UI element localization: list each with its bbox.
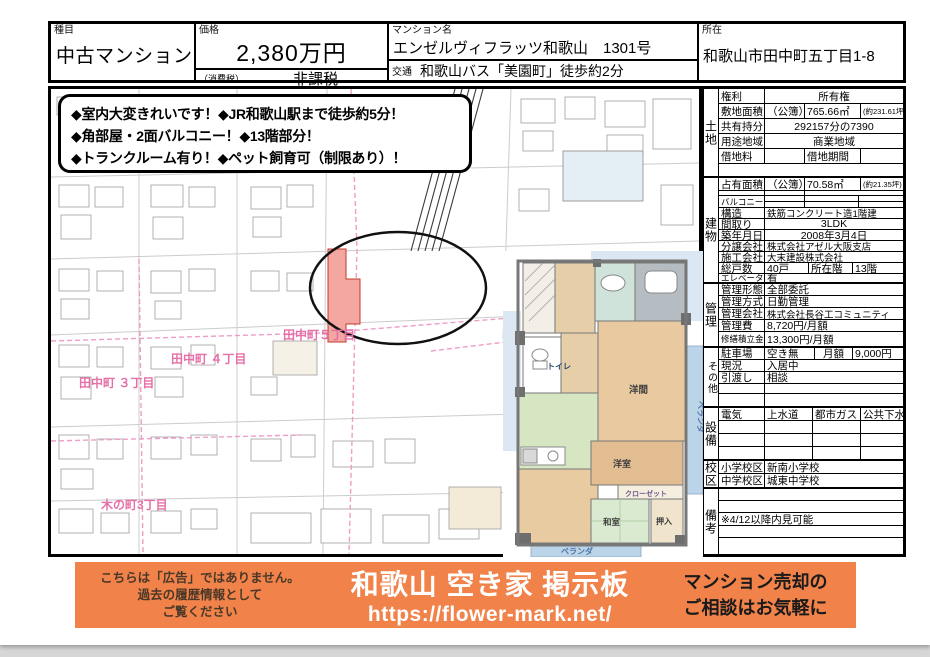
parking-label: 駐車場 [719,348,765,359]
structure-label: 構造 [719,208,765,218]
access-label: 交通 [389,63,420,78]
footer-banner: こちらは「広告」ではありません。 過去の履歴情報として ご覧ください 和歌山 空… [75,562,856,628]
flyer-page: 種目 中古マンション 価格 2,380万円 （消費税） 非課税 マンション名 エ… [0,0,930,645]
row-other-blank1 [719,384,903,394]
handover-label: 引渡し [719,372,765,383]
structure-value: 鉄筋コンクリート造1階建 [765,208,903,218]
stove-icon [523,449,537,463]
constructor-label: 施工会社 [719,252,765,262]
elementary-label: 小学校区 [719,461,765,473]
address-value: 和歌山市田中町五丁目1-8 [699,37,903,66]
mgmt-fee-value: 8,720円/月額 [765,320,903,331]
toilet-icon [532,349,548,361]
section-building-title: 建物 [704,178,719,282]
address-label: 所在 [699,24,903,37]
rights-label: 権利 [719,89,765,103]
section-school-title: 校区 [704,461,719,487]
highlights-callout: ◆室内大変きれいです！◆JR和歌山駅まで徒歩約5分！ ◆角部屋・2面バルコニー！… [58,94,472,173]
zone-value: 商業地域 [765,134,903,148]
banner-brand: 和歌山 空き家 掲示板 https://flower-mark.net/ [325,563,655,627]
cta-line-2: ご相談はお気軽に [655,595,856,621]
note-text: ※4/12以降内見可能 [719,513,903,525]
facility-sewer: 公共下水 [861,408,903,420]
section-management-title: 管理 [704,284,719,346]
land-rent-label: 借地料 [719,149,765,163]
bathtub-icon [645,271,677,293]
washbasin-icon [601,275,625,291]
row-layout: 間取り 3LDK [719,219,903,230]
section-other: その他 駐車場 空き無 月額 9,000円 現況 入居中 引渡し 相談 [704,348,903,408]
section-facilities-title: 設備 [704,408,719,459]
section-other-title: その他 [704,348,719,406]
land-area-label: 敷地面積 [719,104,765,118]
row-land-area: 敷地面積 （公簿） 765.66㎡ (約231.61坪) [719,104,903,119]
row-reserve-fund: 修繕積立金 13,300円/月額 [719,332,903,346]
highlight-line-3: ◆トランクルーム有り！◆ペット飼育可（制限あり）！ [71,147,459,169]
section-land: 土地 権利 所有権 敷地面積 （公簿） 765.66㎡ (約231.61坪) 共… [704,89,903,178]
section-facilities: 設備 電気 上水道 都市ガス 公共下水 [704,408,903,461]
access-value: 和歌山バス「美園町」徒歩約2分 [420,61,624,81]
row-developer: 分譲会社 株式会社アゼル大阪支店 [719,241,903,252]
mgmt-company-value: 株式会社長谷工コミュニティ [765,308,903,319]
developer-label: 分譲会社 [719,241,765,251]
row-mgmt-company: 管理会社 株式会社長谷工コミュニティ [719,308,903,320]
price-value: 2,380万円 [196,34,387,68]
address-cell: 所在 和歌山市田中町五丁目1-8 [699,24,903,80]
row-other-blank2 [719,394,903,406]
map-label-tanaka5: 田中町５丁目 [283,327,355,342]
label-washitsu: 和室 [603,517,621,527]
row-mgmt-fee: 管理費 8,720円/月額 [719,320,903,332]
disclaimer-line-1: こちらは「広告」ではありません。 [75,570,325,587]
highlight-line-1: ◆室内大変きれいです！◆JR和歌山駅まで徒歩約5分！ [71,103,459,125]
building-name-label: マンション名 [389,24,697,37]
developer-value: 株式会社アゼル大阪支店 [765,241,903,251]
handover-value: 相談 [765,372,903,383]
mgmt-form-value: 全部委託 [765,284,903,295]
highlight-line-2: ◆角部屋・2面バルコニー！◆13階部分！ [71,125,459,147]
disclaimer-line-3: ご覧ください [75,604,325,621]
section-school: 校区 小学校区 新南小学校 中学校区 城東中学校 [704,461,903,489]
site-title: 和歌山 空き家 掲示板 [325,563,655,603]
disclaimer-line-2: 過去の履歴情報として [75,587,325,604]
header-table: 種目 中古マンション 価格 2,380万円 （消費税） 非課税 マンション名 エ… [48,21,906,83]
section-land-title: 土地 [704,89,719,176]
label-toilet: トイレ [547,362,571,371]
status-label: 現況 [719,360,765,371]
row-facilities-blank2 [719,434,903,447]
row-structure: 構造 鉄筋コンクリート造1階建 [719,208,903,219]
floorplan-rooms [518,263,686,543]
parking-fee-value: 9,000円 [853,348,903,359]
map-label-kinomachi3: 木の町3丁目 [100,497,168,512]
row-constructor: 施工会社 大末建設株式会社 [719,252,903,263]
parking-fee-label: 月額 [815,348,853,359]
junior-high-value: 城東中学校 [765,474,903,487]
floorplan: トイレ 洋間 洋室 クローゼット 和室 押入 ベランダ ベランダ [503,251,703,557]
floor-value: 13階 [853,263,903,273]
section-building: 建物 占有面積 （公簿） 70.58㎡ (約21.35坪) バルコニー [704,178,903,284]
site-url: https://flower-mark.net/ [325,603,655,627]
row-facilities-header: 電気 上水道 都市ガス 公共下水 [719,408,903,421]
junior-high-label: 中学校区 [719,474,765,487]
layout-label: 間取り [719,219,765,229]
row-facilities-blank3 [719,447,903,459]
built-date-value: 2008年3月4日 [765,230,903,240]
elevator-value: 有 [765,274,903,282]
row-elementary: 小学校区 新南小学校 [719,461,903,474]
row-mgmt-method: 管理方式 日勤管理 [719,296,903,308]
row-parking: 駐車場 空き無 月額 9,000円 [719,348,903,360]
facility-electric: 電気 [719,408,765,420]
price-cell: 価格 2,380万円 （消費税） 非課税 [196,24,389,80]
mgmt-method-label: 管理方式 [719,296,765,307]
units-label: 総戸数 [719,263,765,273]
category-label: 種目 [51,24,194,37]
zone-label: 用途地域 [719,134,765,148]
row-balcony: バルコニー [719,196,903,208]
row-share: 共有持分 292157分の7390 [719,119,903,134]
unit-area-tsubo: (約21.35坪) [861,178,903,190]
row-built-date: 築年月日 2008年3月4日 [719,230,903,241]
name-cell: マンション名 エンゼルヴィフラッツ和歌山 1301号 交通 和歌山バス「美園町」… [389,24,699,80]
label-youma: 洋間 [629,384,648,396]
row-notes-blank4 [719,538,903,554]
unit-area-register: （公簿） [765,178,805,190]
building-name-value: エンゼルヴィフラッツ和歌山 1301号 [389,37,697,58]
mgmt-company-label: 管理会社 [719,308,765,319]
share-value: 292157分の7390 [765,119,903,133]
row-handover: 引渡し 相談 [719,372,903,384]
land-area-register: （公簿） [765,104,805,118]
parking-value: 空き無 [765,348,815,359]
layout-value: 3LDK [765,219,903,229]
category-cell: 種目 中古マンション [51,24,196,80]
map-label-tanaka3: 田中町 ３丁目 [79,375,154,390]
section-notes-title: 備考 [704,489,719,554]
constructor-value: 大末建設株式会社 [765,252,903,262]
facility-water: 上水道 [765,408,813,420]
kitchen-sink-icon [548,451,558,461]
label-veranda-right: ベランダ [696,401,703,433]
units-value: 40戸 [765,263,809,273]
row-units: 総戸数 40戸 所在階 13階 [719,263,903,274]
cta-line-1: マンション売却の [655,569,856,595]
row-note: ※4/12以降内見可能 [719,513,903,526]
land-rent-term-label: 借地期間 [805,149,861,163]
rights-value: 所有権 [765,89,903,103]
label-veranda-bottom: ベランダ [561,546,593,556]
tax-label: （消費税） [196,72,244,85]
mgmt-form-label: 管理形態 [719,284,765,295]
facility-gas: 都市ガス [813,408,861,420]
section-notes: 備考 ※4/12以降内見可能 [704,489,903,554]
category-value: 中古マンション [51,37,194,68]
banner-cta: マンション売却の ご相談はお気軽に [655,569,856,621]
banner-disclaimer: こちらは「広告」ではありません。 過去の履歴情報として ご覧ください [75,570,325,621]
built-date-label: 築年月日 [719,230,765,240]
mgmt-method-value: 日勤管理 [765,296,903,307]
floor-label: 所在階 [809,263,853,273]
row-status: 現況 入居中 [719,360,903,372]
mgmt-fee-label: 管理費 [719,320,765,331]
unit-area-label: 占有面積 [719,178,765,190]
status-value: 入居中 [765,360,903,371]
flyer-stage: 種目 中古マンション 価格 2,380万円 （消費税） 非課税 マンション名 エ… [0,0,930,657]
map-label-tanaka4: 田中町 ４丁目 [171,351,246,366]
land-area-value: 765.66㎡ [805,104,861,118]
details-table: 土地 権利 所有権 敷地面積 （公簿） 765.66㎡ (約231.61坪) 共… [702,86,906,557]
label-closet: クローゼット [625,489,667,498]
share-label: 共有持分 [719,119,765,133]
row-mgmt-form: 管理形態 全部委託 [719,284,903,296]
unit-area-value: 70.58㎡ [805,178,861,190]
row-zone: 用途地域 商業地域 [719,134,903,149]
reserve-fund-label: 修繕積立金 [719,332,765,346]
floorplan-drawing: トイレ 洋間 洋室 クローゼット 和室 押入 ベランダ ベランダ [503,251,703,557]
label-oshiire: 押入 [656,516,672,526]
row-land-blank [719,164,903,176]
balcony-label: バルコニー [719,196,765,207]
row-notes-blank2 [719,501,903,513]
row-rights: 権利 所有権 [719,89,903,104]
label-youshitsu: 洋室 [613,458,631,469]
elevator-label: エレベーター [719,274,765,282]
elementary-value: 新南小学校 [765,461,903,473]
row-notes-blank1 [719,489,903,501]
row-facilities-blank1 [719,421,903,434]
reserve-fund-value: 13,300円/月額 [765,332,903,346]
section-management: 管理 管理形態 全部委託 管理方式 日勤管理 管理会社 株式会社長谷工コミュニテ… [704,284,903,348]
row-land-rent: 借地料 借地期間 [719,149,903,164]
row-notes-blank3 [719,526,903,538]
toilet-seat [533,361,547,369]
row-unit-area: 占有面積 （公簿） 70.58㎡ (約21.35坪) [719,178,903,191]
row-junior-high: 中学校区 城東中学校 [719,474,903,487]
row-elevator: エレベーター 有 [719,274,903,282]
land-area-tsubo: (約231.61坪) [861,104,903,118]
